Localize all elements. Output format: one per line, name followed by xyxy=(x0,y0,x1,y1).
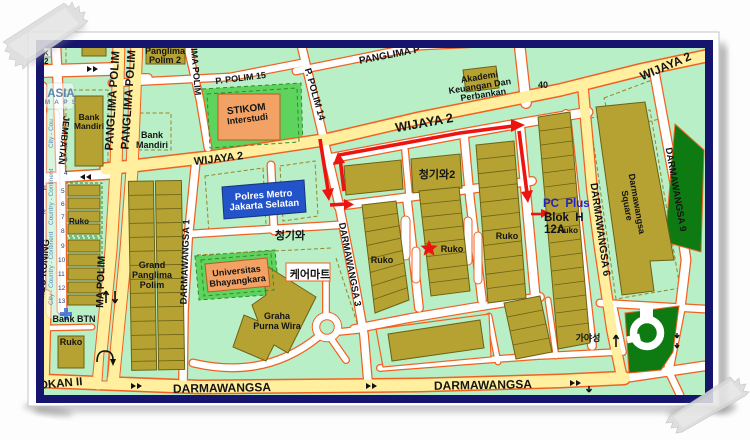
svg-text:11: 11 xyxy=(58,271,65,278)
svg-text:M A P S: M A P S xyxy=(45,99,78,106)
svg-text:DARMAWANGSA: DARMAWANGSA xyxy=(173,380,272,396)
svg-text:5: 5 xyxy=(61,188,65,195)
svg-text:Blok H: Blok H xyxy=(544,212,584,224)
svg-text:Ruko: Ruko xyxy=(69,217,89,226)
svg-text:10: 10 xyxy=(58,257,66,264)
svg-text:Ruko: Ruko xyxy=(371,255,394,265)
svg-text:City - Cou: City - Cou xyxy=(48,119,55,148)
svg-text:Ruko: Ruko xyxy=(496,231,519,241)
svg-text:2: 2 xyxy=(44,57,49,66)
svg-text:Ruko: Ruko xyxy=(441,244,464,254)
svg-text:DARMAWANGSA: DARMAWANGSA xyxy=(434,377,533,393)
svg-text:Grand: Grand xyxy=(139,260,166,270)
svg-text:Bank BTN: Bank BTN xyxy=(52,314,95,324)
svg-text:7: 7 xyxy=(61,214,65,221)
svg-text:40: 40 xyxy=(538,80,548,90)
svg-text:6: 6 xyxy=(61,201,65,208)
svg-text:Mandiri: Mandiri xyxy=(74,121,104,131)
svg-text:4: 4 xyxy=(64,170,68,177)
svg-text:가야성: 가야성 xyxy=(576,332,601,343)
svg-text:8: 8 xyxy=(61,228,65,235)
svg-text:PC Plus: PC Plus xyxy=(543,198,590,210)
svg-text:12A: 12A xyxy=(544,224,565,236)
svg-text:Mandiri: Mandiri xyxy=(136,140,168,150)
svg-text:Purna Wira: Purna Wira xyxy=(253,321,301,331)
svg-text:Polim 2: Polim 2 xyxy=(149,55,181,65)
svg-text:13: 13 xyxy=(58,298,66,305)
svg-text:Panglima: Panglima xyxy=(132,270,173,280)
svg-text:MA POLIM: MA POLIM xyxy=(94,255,108,308)
svg-text:12: 12 xyxy=(58,285,66,292)
svg-text:Ruko: Ruko xyxy=(60,337,83,347)
svg-text:케어마트: 케어마트 xyxy=(290,267,330,281)
svg-text:9: 9 xyxy=(61,243,65,250)
svg-text:Bank: Bank xyxy=(141,130,164,140)
svg-text:Polim: Polim xyxy=(140,280,165,290)
svg-text:Graha: Graha xyxy=(264,311,291,321)
svg-text:청기와: 청기와 xyxy=(275,228,305,242)
svg-text:Country - Continent: Country - Continent xyxy=(48,168,55,225)
svg-text:청기와2: 청기와2 xyxy=(419,167,455,181)
